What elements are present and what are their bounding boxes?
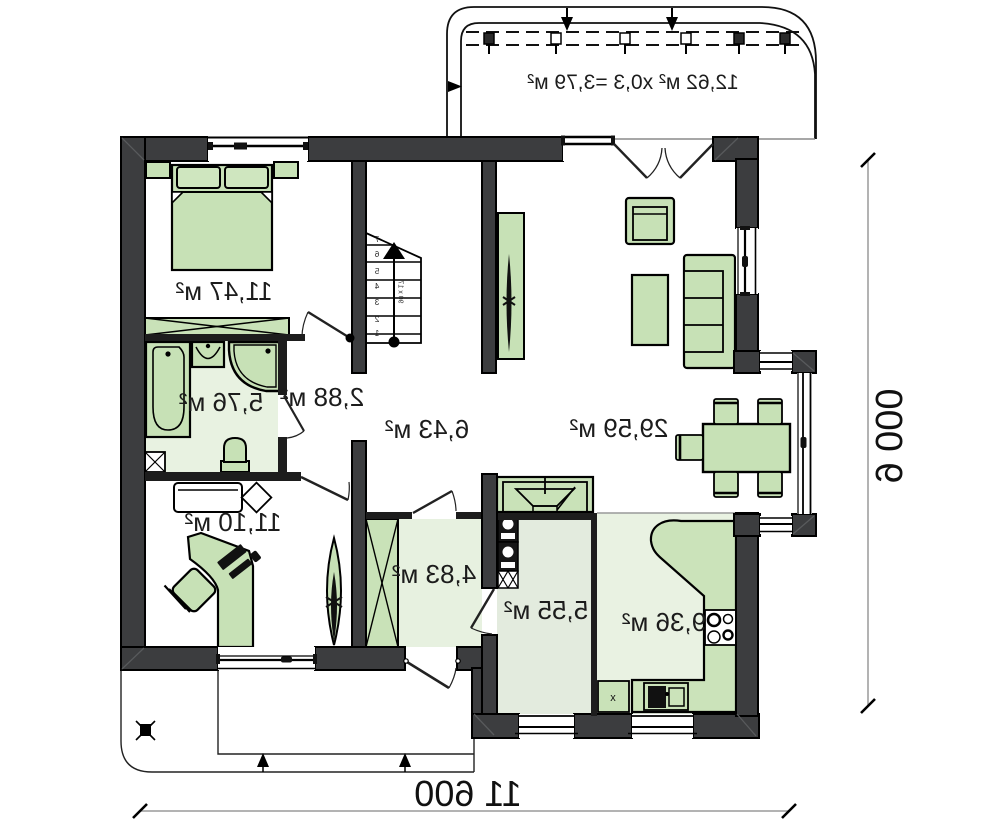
svg-text:5: 5 (374, 267, 379, 276)
svg-text:4: 4 (374, 282, 379, 291)
svg-text:29,59 м²: 29,59 м² (569, 413, 668, 443)
svg-text:90 x 17: 90 x 17 (397, 280, 404, 303)
svg-text:x: x (610, 692, 616, 704)
svg-text:11,10 м²: 11,10 м² (184, 507, 281, 537)
svg-text:5,76 м²: 5,76 м² (178, 387, 263, 417)
svg-text:2,88 м²: 2,88 м² (279, 382, 364, 412)
svg-text:9,36 м²: 9,36 м² (621, 607, 706, 637)
svg-text:2: 2 (374, 315, 379, 324)
svg-text:6: 6 (374, 250, 379, 259)
svg-text:11,47 м²: 11,47 м² (175, 276, 272, 306)
svg-text:1: 1 (374, 329, 379, 338)
svg-text:4,83 м²: 4,83 м² (391, 559, 476, 589)
svg-text:7: 7 (374, 235, 379, 244)
svg-text:5,55 м²: 5,55 м² (503, 595, 588, 625)
svg-text:11 600: 11 600 (414, 773, 521, 814)
svg-text:12,62 м² x0,3 =3,79 м²: 12,62 м² x0,3 =3,79 м² (527, 71, 739, 94)
svg-text:6,43 м²: 6,43 м² (384, 414, 469, 444)
svg-text:3: 3 (374, 298, 379, 307)
svg-text:9 000: 9 000 (867, 388, 909, 483)
